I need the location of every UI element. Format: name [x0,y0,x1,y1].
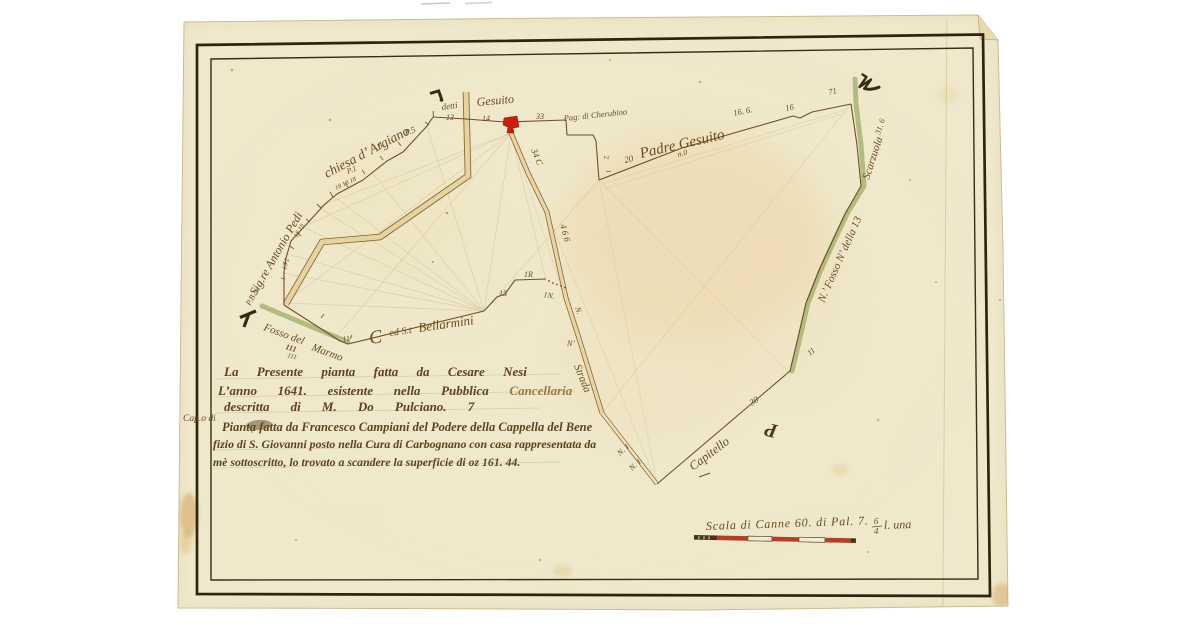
svg-text:N’: N’ [566,339,575,348]
svg-text:mè sottoscritto, lo trovato a: mè sottoscritto, lo trovato a scandere l… [213,455,520,469]
svg-text:Cap.o di: Cap.o di [183,414,216,424]
svg-text:L’anno 1641. esistente nella P: L’anno 1641. esistente nella Pubblica Ca… [217,383,573,398]
svg-text:33: 33 [535,112,544,121]
svg-text:La Presente pianta fatta da Ce: La Presente pianta fatta da Cesare Nesi [223,364,527,379]
svg-text:fizio di S. Giovanni posto nel: fizio di S. Giovanni posto nella Cura di… [213,437,596,451]
svg-text:11: 11 [342,334,351,344]
svg-text:14: 14 [482,114,490,123]
svg-text:descritta di M. Do Pulciano. 7: descritta di M. Do Pulciano. 7 [224,399,475,414]
svg-text:Pianta fatta da Francesco Camp: Pianta fatta da Francesco Campiani del P… [222,420,593,434]
svg-text:6: 6 [874,516,879,526]
svg-text:15: 15 [499,289,507,298]
svg-text:l. una: l. una [884,517,912,532]
svg-text:1R: 1R [524,270,533,279]
svg-text:13: 13 [446,113,454,122]
svg-text:4: 4 [874,526,879,536]
